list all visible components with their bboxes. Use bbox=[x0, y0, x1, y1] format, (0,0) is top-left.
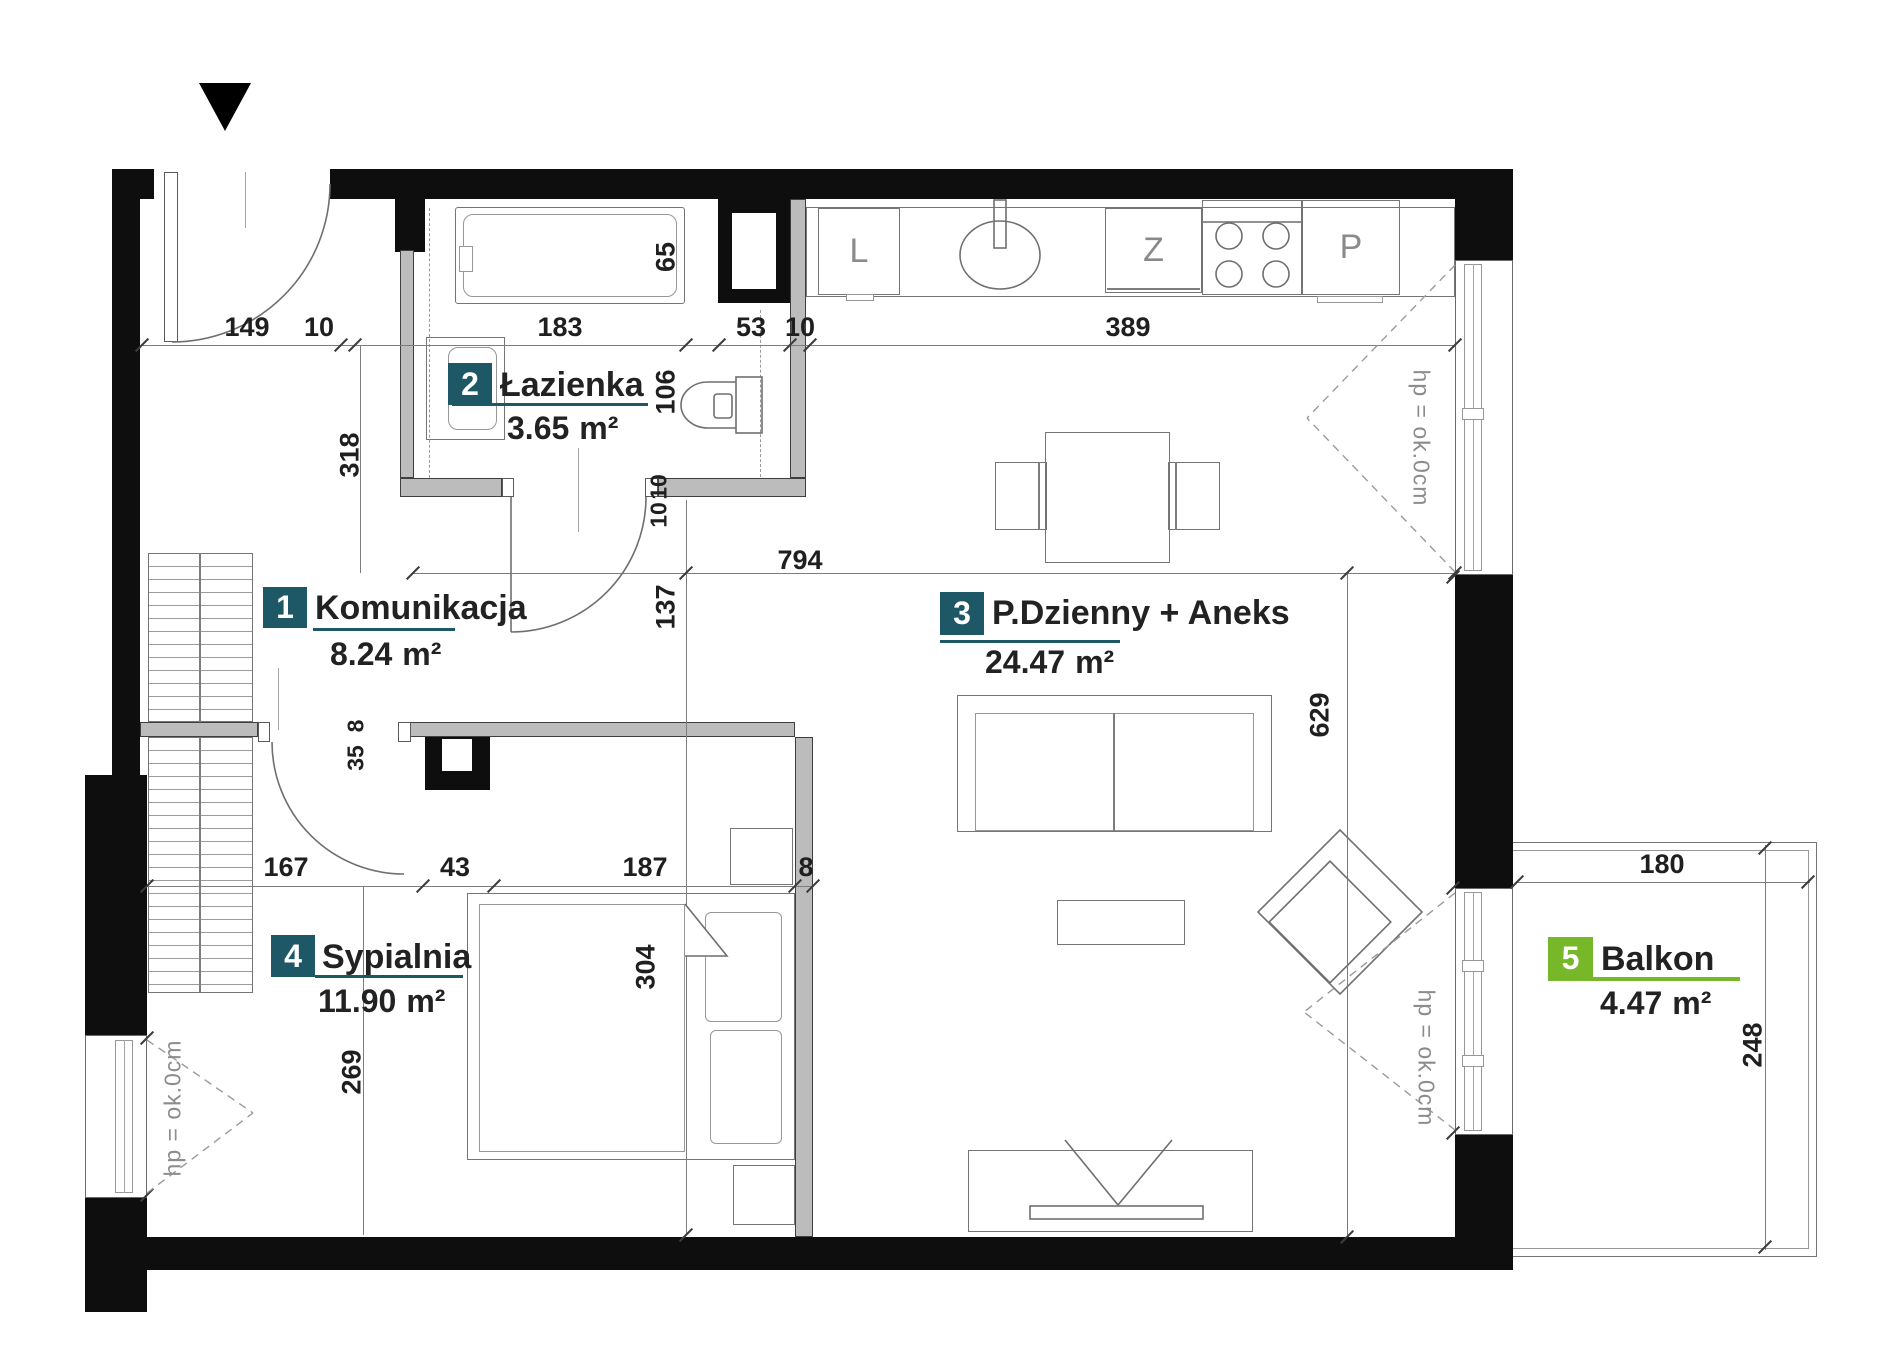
dim-label: 10 bbox=[646, 474, 673, 500]
coffee-table bbox=[1057, 900, 1185, 945]
door-jamb bbox=[398, 722, 411, 742]
oven-label: P bbox=[1302, 200, 1400, 295]
room-name-2: Łazienka bbox=[500, 366, 644, 405]
wall-right-upper bbox=[1455, 199, 1513, 260]
wall-top bbox=[330, 169, 1513, 199]
kitchen-window-mullion bbox=[1462, 408, 1484, 420]
room-badge-4: 4 bbox=[271, 935, 315, 977]
fridge-handle bbox=[846, 294, 874, 301]
room-name-5: Balkon bbox=[1601, 940, 1714, 979]
dim-label: 269 bbox=[337, 1049, 368, 1094]
area-value: 3.65 bbox=[507, 410, 569, 446]
tv-stand bbox=[968, 1150, 1253, 1232]
dim-line bbox=[1517, 882, 1810, 883]
dim-label: 53 bbox=[736, 312, 766, 343]
room-area-4: 11.90m² bbox=[318, 983, 445, 1020]
dim-label: 35 bbox=[343, 745, 370, 771]
oven-handle bbox=[1317, 296, 1383, 303]
dim-label: 389 bbox=[1105, 312, 1150, 343]
dim-label: 43 bbox=[440, 852, 470, 883]
structural-column-core bbox=[442, 739, 472, 771]
room-area-2: 3.65m² bbox=[507, 410, 618, 447]
room-badge-1: 1 bbox=[263, 587, 307, 628]
area-value: 11.90 bbox=[318, 983, 396, 1019]
balcony-door-mullion bbox=[1462, 960, 1484, 972]
window-height-note: hp = ok.0cm bbox=[1408, 370, 1435, 507]
dim-label: 248 bbox=[1738, 1022, 1769, 1067]
wardrobe-divider bbox=[199, 553, 201, 722]
bedroom-east-wall bbox=[795, 737, 813, 1237]
room-name-1: Komunikacja bbox=[315, 589, 527, 628]
room-number: 5 bbox=[1562, 940, 1580, 977]
room-underline-2 bbox=[452, 403, 648, 406]
area-value: 4.47 bbox=[1600, 985, 1662, 1021]
dim-label: 167 bbox=[263, 852, 308, 883]
area-unit: m² bbox=[406, 983, 445, 1019]
bathtub-inner bbox=[463, 214, 677, 297]
room-underline-1 bbox=[313, 628, 455, 631]
toilet-tank bbox=[736, 377, 762, 433]
wall-right-middle bbox=[1455, 575, 1513, 888]
entrance-door-leaf bbox=[164, 172, 178, 342]
room-underline-3 bbox=[940, 640, 1120, 643]
bathroom-west-wall bbox=[400, 250, 414, 478]
area-value: 24.47 bbox=[985, 644, 1065, 680]
hob bbox=[1202, 200, 1302, 295]
room-badge-5: 5 bbox=[1548, 937, 1593, 980]
dishwasher-letter: Z bbox=[1143, 231, 1164, 270]
wall-bottom bbox=[85, 1237, 1513, 1270]
chair-line bbox=[1038, 462, 1040, 530]
wall-right-lower bbox=[1455, 1135, 1513, 1237]
door-jamb bbox=[258, 722, 270, 742]
wall-left bbox=[112, 199, 140, 775]
dim-label: 10 bbox=[785, 312, 815, 343]
room-badge-3: 3 bbox=[940, 592, 984, 635]
dining-table bbox=[1045, 432, 1170, 563]
sofa-divider bbox=[1113, 713, 1115, 831]
oven-letter: P bbox=[1340, 228, 1363, 267]
fridge-letter: L bbox=[850, 232, 869, 271]
bedroom-north-wall bbox=[410, 722, 795, 737]
bathroom-south-wall-east bbox=[658, 478, 806, 497]
dim-label: 8 bbox=[798, 852, 813, 883]
dim-label: 180 bbox=[1639, 849, 1684, 880]
dim-label: 8 bbox=[343, 720, 370, 733]
dim-label: 10 bbox=[304, 312, 334, 343]
room-underline-5 bbox=[1548, 977, 1740, 981]
window-height-note: hp = ok.0cm bbox=[1413, 990, 1440, 1127]
entrance-axis-line bbox=[245, 172, 246, 228]
bathroom-south-wall-west bbox=[400, 478, 502, 497]
bed-pillow bbox=[710, 1030, 782, 1144]
shaft-interior bbox=[732, 213, 776, 289]
door-jamb bbox=[502, 478, 514, 497]
dim-label: 149 bbox=[224, 312, 269, 343]
chair-line bbox=[1175, 462, 1177, 530]
bedroom-north-wall-west bbox=[140, 722, 258, 737]
entrance-arrow-icon bbox=[199, 83, 251, 131]
area-value: 8.24 bbox=[330, 636, 392, 672]
balcony-door-glass bbox=[1473, 892, 1474, 1131]
armchair-icon-inner bbox=[1269, 861, 1391, 983]
room-number: 3 bbox=[953, 595, 971, 632]
room-badge-2: 2 bbox=[448, 363, 492, 405]
room-number: 1 bbox=[276, 589, 294, 626]
dim-line bbox=[686, 500, 687, 1235]
dim-label: 137 bbox=[651, 584, 682, 629]
toilet-seat bbox=[714, 394, 732, 418]
room-area-1: 8.24m² bbox=[330, 636, 441, 673]
room-name-4: Sypialnia bbox=[322, 938, 471, 977]
bedroom-window-glass bbox=[124, 1040, 125, 1193]
label-leader-line bbox=[278, 668, 279, 730]
label-leader-line bbox=[578, 448, 579, 532]
dim-label: 304 bbox=[631, 944, 662, 989]
dim-label: 106 bbox=[651, 369, 682, 414]
dim-label: 629 bbox=[1305, 692, 1336, 737]
bathtub-fixture bbox=[459, 246, 473, 272]
room-number: 4 bbox=[284, 938, 302, 975]
ceiling-change-line bbox=[429, 208, 430, 478]
wardrobe-divider bbox=[199, 737, 201, 993]
area-unit: m² bbox=[402, 636, 441, 672]
dim-label: 794 bbox=[777, 545, 822, 576]
room-area-3: 24.47m² bbox=[985, 644, 1114, 681]
area-unit: m² bbox=[1075, 644, 1114, 680]
wall-top-left-corner bbox=[112, 169, 154, 199]
dim-line bbox=[147, 886, 813, 887]
dishwasher-label: Z bbox=[1105, 208, 1202, 293]
wall-bathroom-pier bbox=[395, 199, 425, 252]
area-unit: m² bbox=[579, 410, 618, 446]
floor-plan: L Z P bbox=[0, 0, 1900, 1351]
area-unit: m² bbox=[1672, 985, 1711, 1021]
dim-label: 187 bbox=[622, 852, 667, 883]
balcony-door-mullion bbox=[1462, 1055, 1484, 1067]
nightstand bbox=[733, 1165, 795, 1225]
wall-left-lower bbox=[85, 775, 147, 1035]
dim-label: 10 bbox=[646, 502, 673, 528]
room-area-5: 4.47m² bbox=[1600, 985, 1711, 1022]
window-height-note: hp = ok.0cm bbox=[160, 1040, 187, 1177]
fridge-label: L bbox=[818, 208, 900, 295]
dim-label: 183 bbox=[537, 312, 582, 343]
toilet-bowl bbox=[681, 382, 736, 428]
room-name-3: P.Dzienny + Aneks bbox=[992, 594, 1290, 633]
nightstand bbox=[730, 828, 793, 885]
bed-pillow bbox=[705, 912, 782, 1022]
dim-label: 318 bbox=[335, 432, 366, 477]
room-number: 2 bbox=[461, 366, 479, 403]
dim-line bbox=[413, 573, 1455, 574]
bed-mattress bbox=[479, 904, 685, 1152]
armchair-icon bbox=[1258, 830, 1422, 994]
dim-label: 65 bbox=[651, 242, 682, 272]
room-underline-4 bbox=[315, 975, 463, 978]
dim-line bbox=[1347, 573, 1348, 1237]
